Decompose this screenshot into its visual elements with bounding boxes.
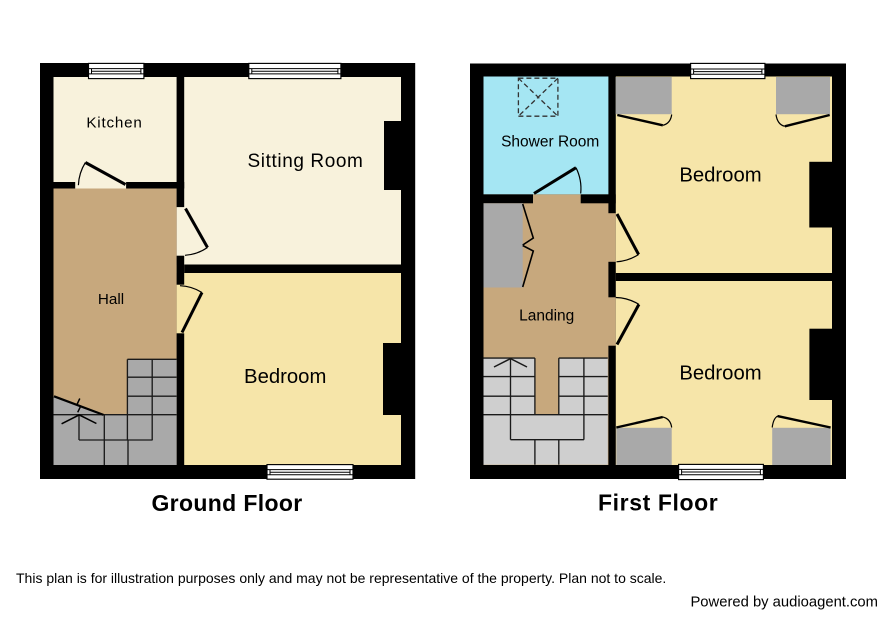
svg-text:Bedroom: Bedroom — [679, 164, 761, 186]
svg-text:Bedroom: Bedroom — [244, 366, 326, 388]
svg-text:Landing: Landing — [519, 308, 574, 325]
svg-text:First Floor: First Floor — [598, 490, 718, 516]
svg-text:Kitchen: Kitchen — [86, 115, 142, 132]
svg-text:Hall: Hall — [98, 291, 124, 308]
svg-text:This plan is for illustration: This plan is for illustration purposes o… — [16, 570, 666, 586]
svg-text:Shower Room: Shower Room — [501, 134, 599, 151]
svg-text:Powered by audioagent.com: Powered by audioagent.com — [690, 594, 878, 610]
svg-text:Ground Floor: Ground Floor — [151, 490, 302, 516]
svg-text:Bedroom: Bedroom — [679, 362, 761, 384]
svg-text:Sitting Room: Sitting Room — [248, 151, 364, 172]
